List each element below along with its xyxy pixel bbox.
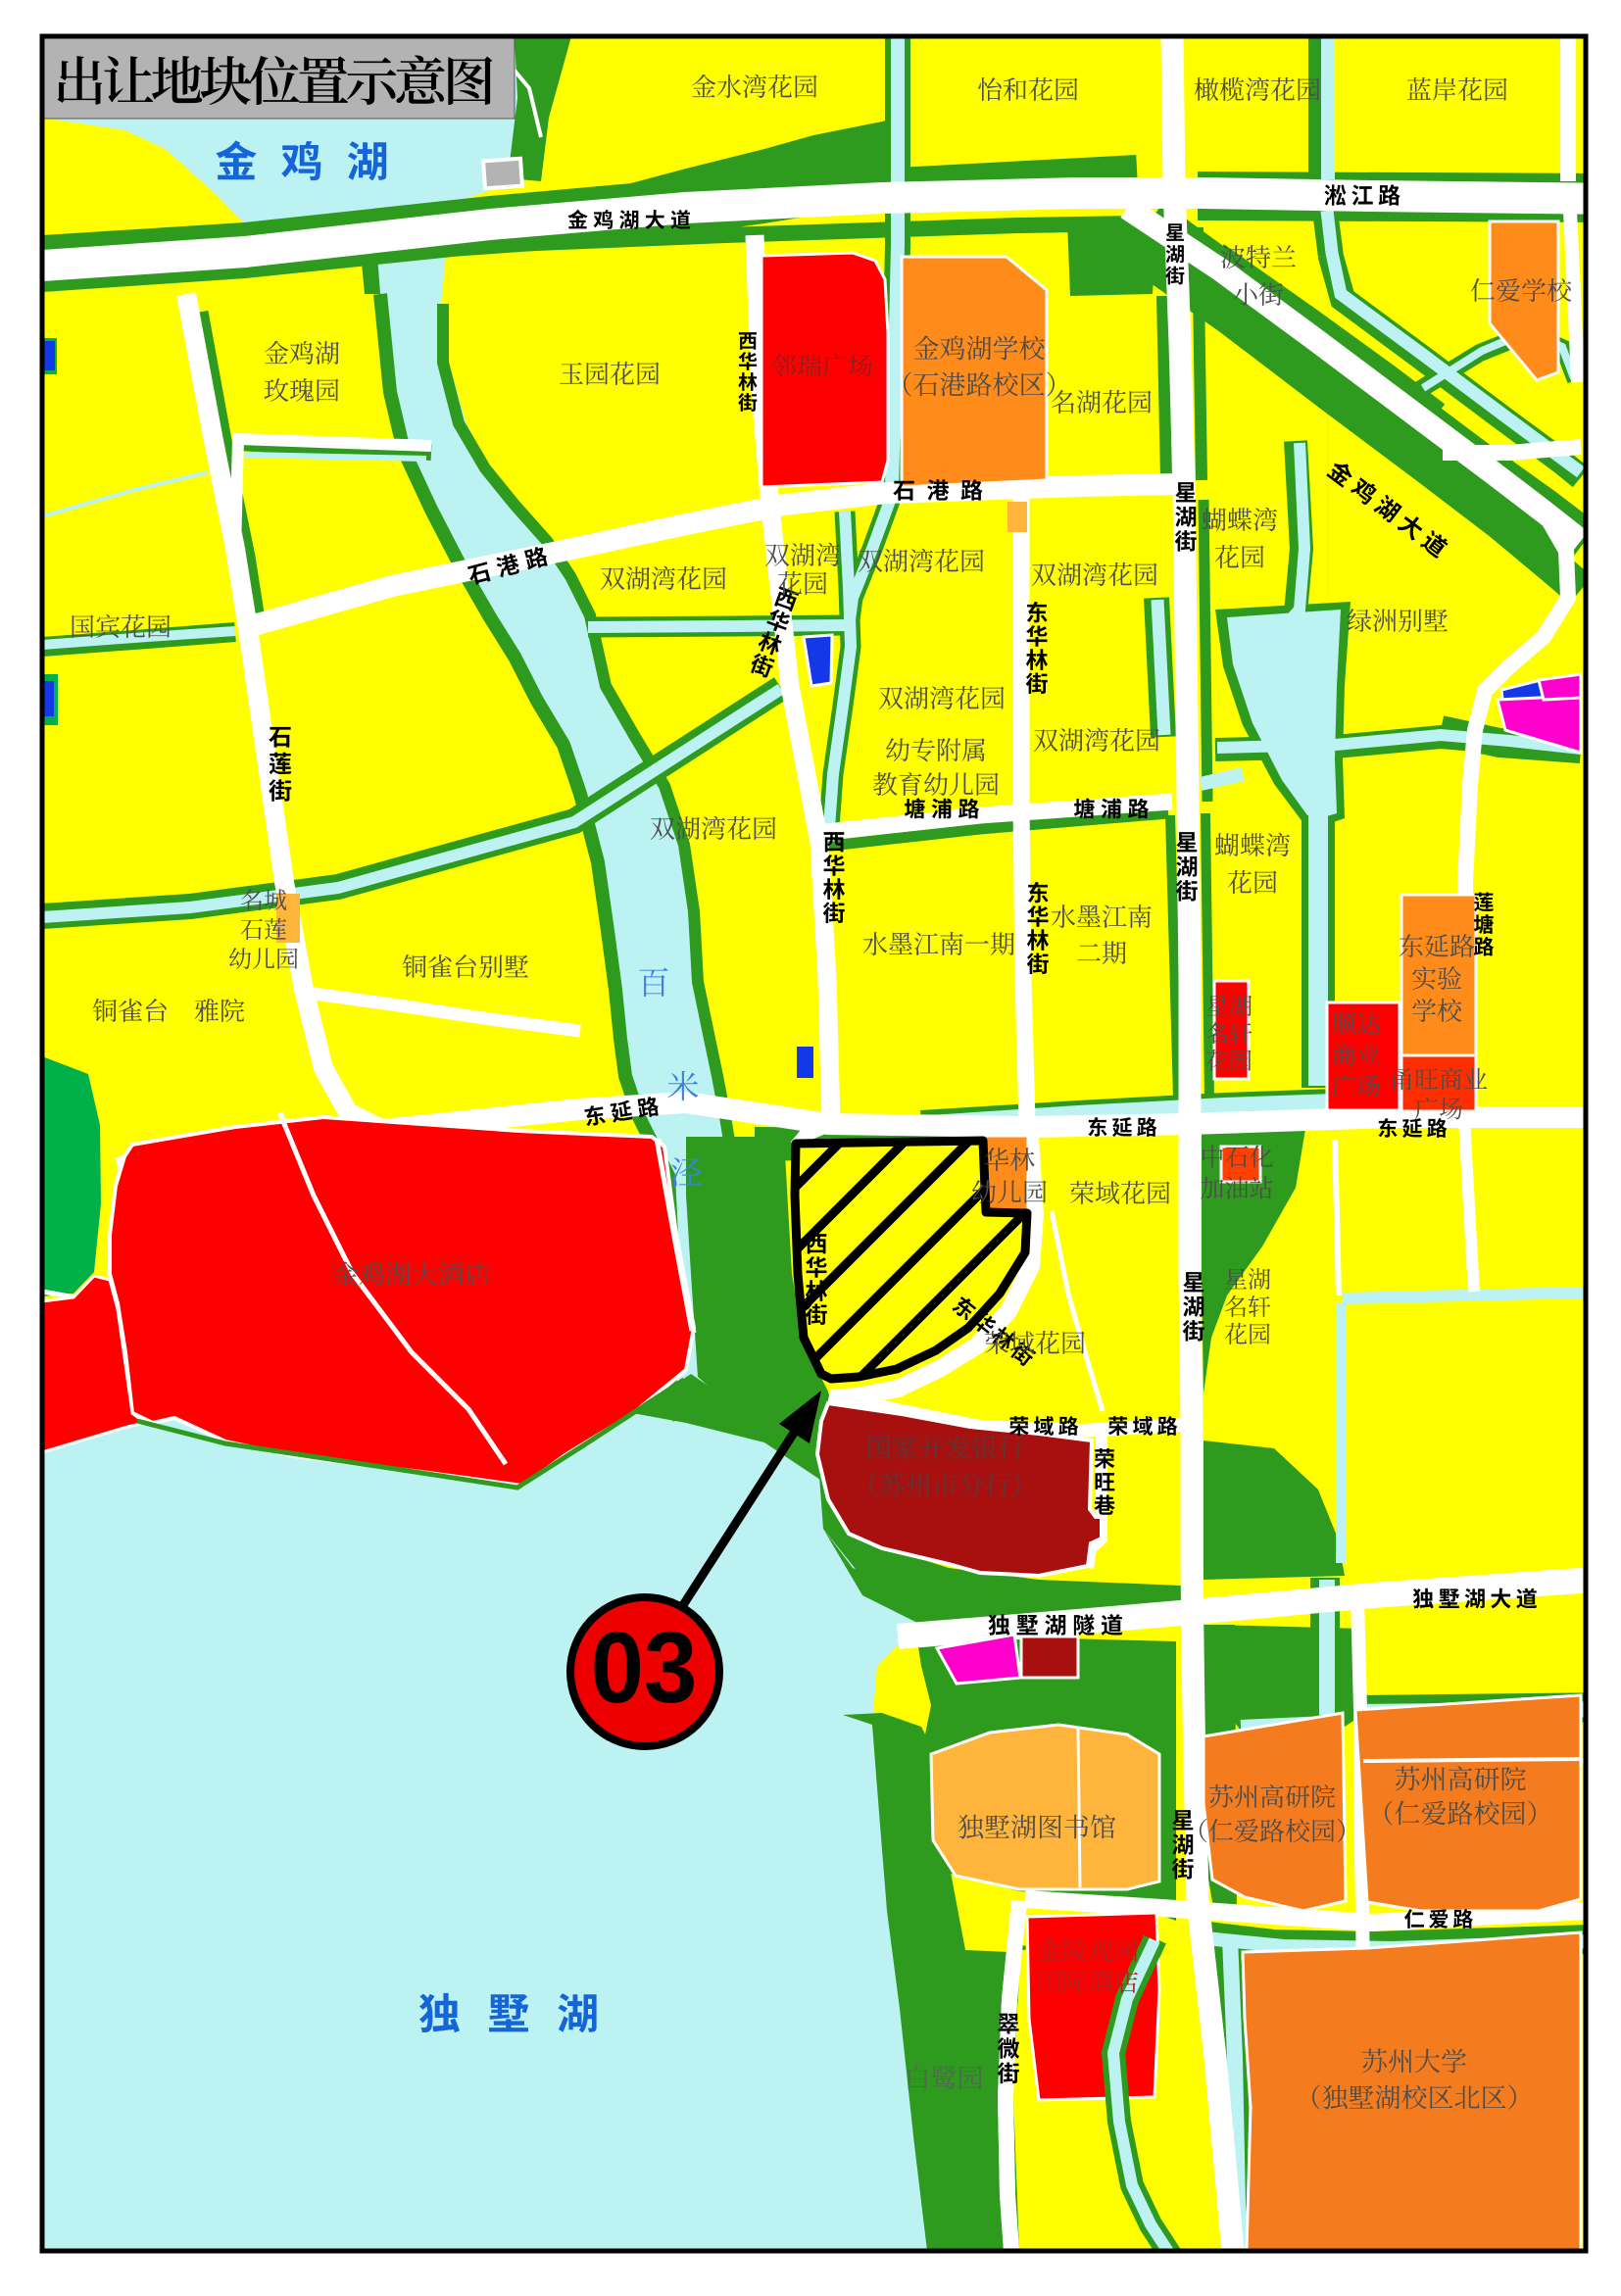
- svg-text:03: 03: [591, 1612, 698, 1725]
